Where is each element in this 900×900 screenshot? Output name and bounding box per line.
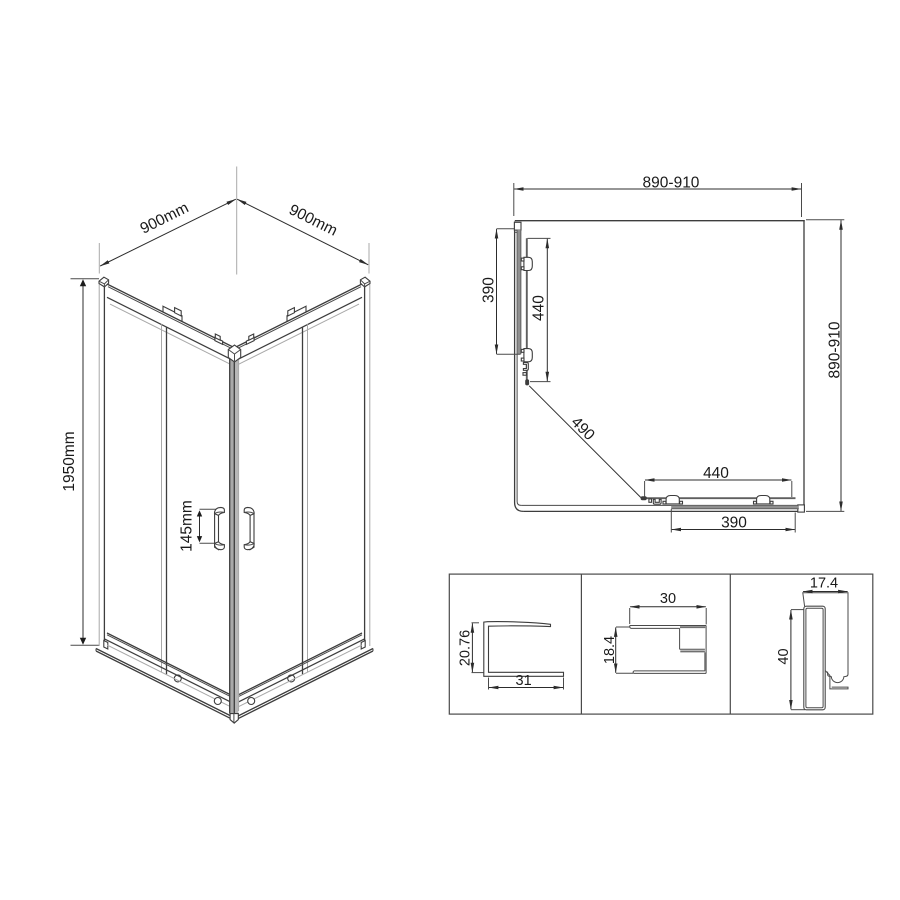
svg-text:145mm: 145mm bbox=[179, 500, 196, 552]
svg-text:31: 31 bbox=[516, 673, 532, 689]
svg-text:390: 390 bbox=[481, 277, 498, 303]
svg-text:440: 440 bbox=[531, 295, 548, 321]
svg-text:890-910: 890-910 bbox=[643, 175, 700, 192]
svg-text:440: 440 bbox=[703, 465, 729, 482]
svg-text:20.76: 20.76 bbox=[458, 630, 474, 666]
svg-text:30: 30 bbox=[660, 591, 676, 607]
svg-text:40: 40 bbox=[776, 648, 792, 664]
svg-text:1950mm: 1950mm bbox=[61, 431, 78, 491]
svg-text:18.4: 18.4 bbox=[602, 636, 618, 664]
svg-text:17.4: 17.4 bbox=[810, 575, 838, 591]
svg-text:890-910: 890-910 bbox=[827, 321, 844, 378]
svg-text:390: 390 bbox=[721, 515, 747, 532]
